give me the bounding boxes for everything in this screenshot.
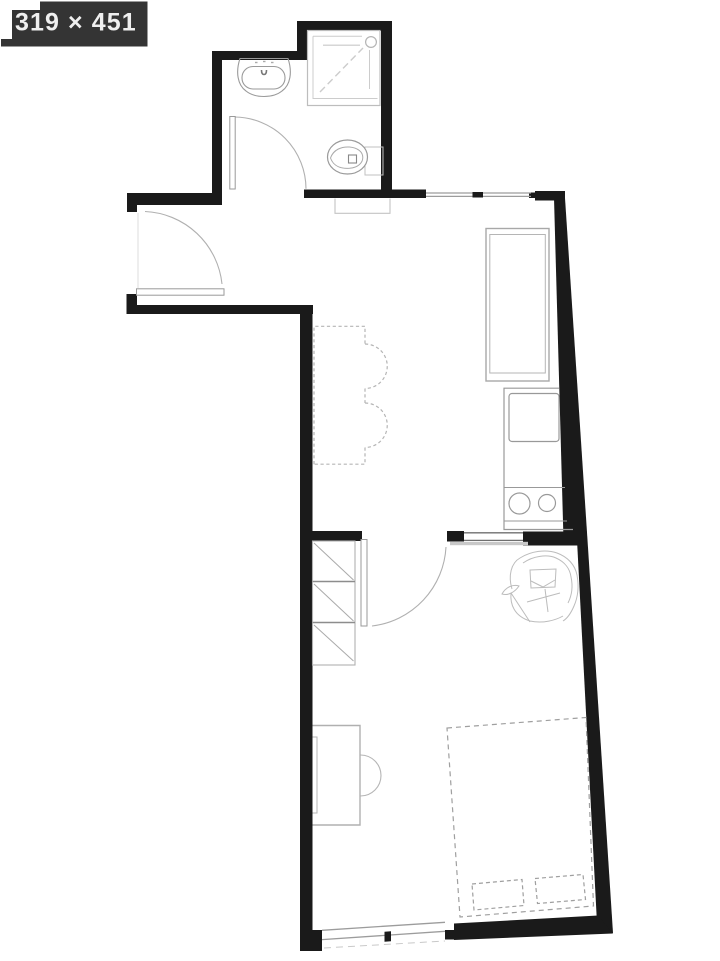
- svg-text:319 × 451: 319 × 451: [15, 9, 137, 37]
